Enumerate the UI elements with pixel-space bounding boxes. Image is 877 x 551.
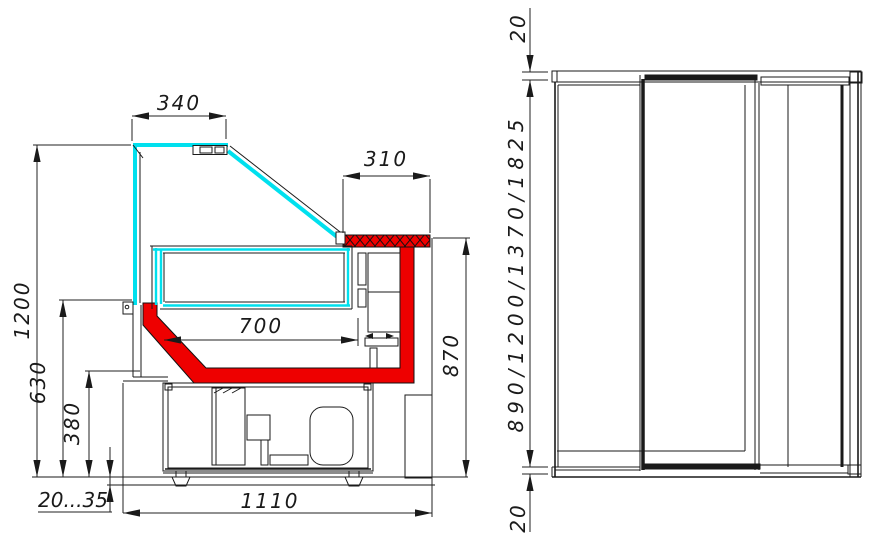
dim-top-gap-label: 20 [506,13,530,42]
machinery-compartment [163,383,373,473]
door-top-rail [645,75,757,80]
technical-drawing: 340 310 700 1200 630 380 20...35 1110 87… [0,0,877,551]
dim-worktop-height-label: 870 [439,333,463,377]
side-view-body [552,71,862,477]
dim-glass-height-label: 1200 [10,281,34,340]
display-well [150,246,352,309]
drain-tray [270,455,308,465]
electric-box [247,415,270,440]
side-view: 20 890/1200/1370/1825 20 [504,8,862,533]
dim-base-height-label: 380 [60,401,84,445]
dim-front-panel-height-label: 630 [26,360,50,404]
rear-pedestal [405,395,432,478]
dim-well-width-label: 700 [239,314,283,338]
dim-leg-adjustment-label: 20...35 [38,488,108,512]
dim-overall-depth-label: 1110 [241,489,300,513]
dim-height-options-label: 890/1200/1370/1825 [504,113,528,432]
dim-shelf-depth-label: 310 [364,147,408,171]
door-bottom-rail [645,464,760,469]
side-dimension-labels: 20 890/1200/1370/1825 20 [504,13,530,532]
ground-lines [32,477,468,485]
dim-bottom-gap-label: 20 [506,503,530,532]
section-view: 340 310 700 1200 630 380 20...35 1110 87… [10,91,470,517]
compressor [310,407,353,465]
evaporator-unit [358,253,400,368]
front-glass [133,143,345,305]
glass-slope-pane [228,151,341,240]
dim-canopy-depth-label: 340 [157,91,201,115]
condenser-duct [212,388,245,465]
rear-countertop [343,235,430,247]
drawing-canvas: 340 310 700 1200 630 380 20...35 1110 87… [0,0,877,551]
